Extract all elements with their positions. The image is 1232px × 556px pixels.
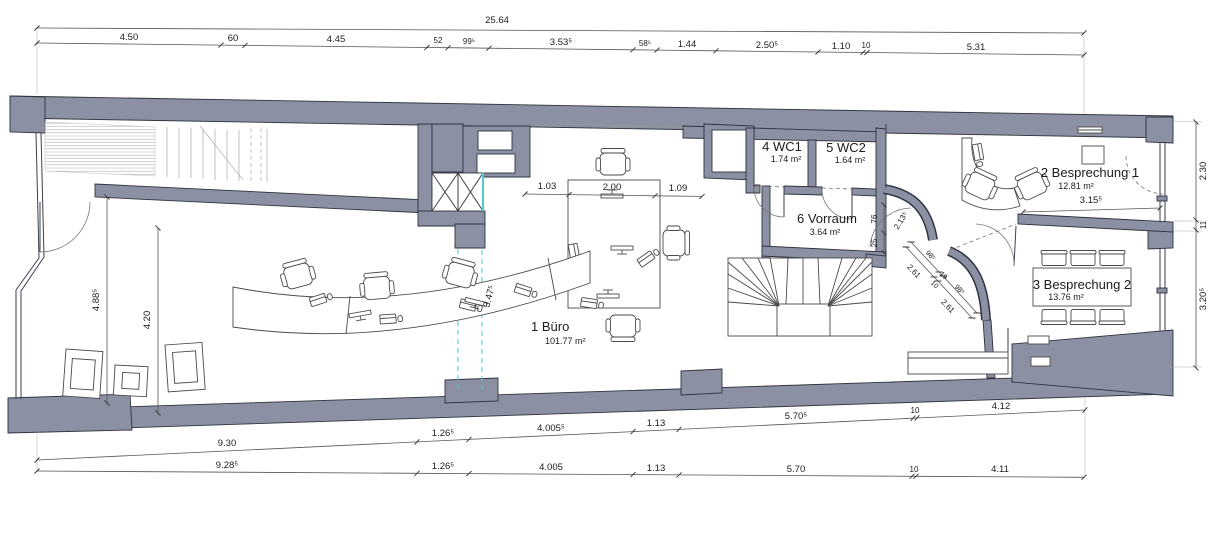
dim-botA-1: 1.26⁵ — [432, 428, 454, 439]
conference-chair — [1070, 310, 1096, 325]
dim-top-3: 52 — [434, 36, 443, 45]
dim-diag-5: 2.61 — [939, 298, 957, 316]
top-total-dim-line — [37, 28, 1084, 33]
dim-top-7: 1.44 — [678, 39, 697, 50]
dim-top-10: 10 — [862, 41, 871, 50]
dim-botA-3: 1.13 — [647, 418, 666, 429]
office-chair — [663, 226, 690, 260]
room-area-wc2: 1.64 m² — [835, 155, 866, 165]
dim-stair-0: 76 — [870, 214, 879, 223]
dim-botA-4: 5.70⁵ — [785, 411, 807, 422]
dim-b1-width: 3.15⁵ — [1080, 195, 1102, 206]
office-chair — [596, 149, 630, 176]
buero-table-group — [568, 149, 690, 342]
conference-chair — [1070, 251, 1096, 266]
room-label-buero: 1 Büro — [531, 319, 569, 334]
dim-stair-2: 2.13⁵ — [892, 210, 910, 231]
office-chair — [441, 256, 481, 290]
dim-top-4: 99⁵ — [463, 37, 475, 46]
entry-ramp-stair — [45, 122, 267, 182]
office-chair — [359, 271, 395, 300]
dim-table-0: 1.03 — [538, 181, 557, 192]
dim-top-9: 1.10 — [832, 41, 851, 52]
elevator-shaft — [432, 173, 483, 211]
dim-botA-5: 10 — [911, 406, 920, 415]
dim-top-11: 5.31 — [967, 42, 986, 53]
conference-chair — [1041, 310, 1067, 325]
dim-botB-1: 1.26⁵ — [432, 461, 454, 472]
dim-diag-4: 98⁵ — [953, 284, 966, 297]
small-table — [1082, 146, 1104, 164]
wc2-door — [822, 188, 852, 189]
dim-right-0: 2.30 — [1198, 162, 1209, 181]
room-area-besprechung1: 12.81 m² — [1058, 181, 1094, 191]
room-area-buero: 101.77 m² — [545, 336, 586, 346]
room-area-wc1: 1.74 m² — [771, 154, 802, 164]
armchair — [165, 342, 205, 391]
dim-botB-6: 4.11 — [991, 464, 1009, 475]
dim-top-0: 4.50 — [120, 32, 139, 43]
conference-chair — [1041, 251, 1067, 266]
armchair — [63, 349, 103, 398]
dim-top-1: 60 — [228, 33, 239, 44]
floor-plan-canvas: 25.64 4.50 60 4.45 52 99⁵ 3.53⁵ 58⁵ 1.44… — [0, 0, 1232, 556]
dim-botB-3: 1.13 — [647, 463, 666, 474]
dim-right-1: 11 — [1199, 220, 1208, 229]
dim-stair-1: 25 — [870, 238, 879, 247]
office-chair — [278, 257, 318, 291]
dim-botB-4: 5.70 — [787, 464, 806, 475]
dim-table-1: 2.00 — [603, 182, 622, 193]
side-table — [113, 365, 148, 397]
room-area-besprechung2: 13.76 m² — [1048, 292, 1084, 302]
dim-botB-5: 10 — [910, 465, 919, 474]
room-label-vorraum: 6 Vorraum — [797, 211, 857, 226]
dim-botB-2: 4.005 — [539, 462, 563, 473]
dim-top-2: 4.45 — [327, 34, 346, 45]
room-area-vorraum: 3.64 m² — [810, 227, 841, 237]
dim-diag-1: 98⁵ — [924, 250, 937, 263]
besprechung1-width-dim — [1023, 208, 1160, 212]
dim-botA-0: 9.30 — [218, 438, 237, 449]
dim-top-total: 25.64 — [485, 15, 509, 26]
dim-top-5: 3.53⁵ — [550, 37, 572, 48]
dim-right-2: 3.20⁵ — [1198, 288, 1209, 310]
lounge-group — [63, 342, 205, 398]
room-label-wc2: 5 WC2 — [826, 140, 866, 155]
conference-chair — [1099, 251, 1125, 266]
dim-top-6: 58⁵ — [639, 39, 651, 48]
conference-chair — [1099, 310, 1125, 325]
dim-botB-0: 9.28⁵ — [216, 460, 238, 471]
wall-shelf — [1031, 357, 1050, 366]
dim-botA-6: 4.12 — [992, 401, 1011, 412]
dim-top-8: 2.50⁵ — [756, 40, 778, 51]
dim-left-0: 4.88⁵ — [91, 289, 102, 311]
dim-botA-2: 4.005⁵ — [537, 423, 565, 434]
office-chair — [606, 315, 640, 342]
room-label-besprechung2: 3 Besprechung 2 — [1033, 277, 1131, 292]
room-label-wc1: 4 WC1 — [762, 139, 802, 154]
winder-staircase — [728, 258, 872, 336]
room-label-besprechung1: 2 Besprechung 1 — [1041, 165, 1139, 180]
dim-left-1: 4.20 — [142, 311, 153, 330]
wall-shelf — [1028, 336, 1049, 344]
entry-door-swing — [40, 202, 90, 252]
dim-diag-0: 2.61 — [905, 263, 923, 281]
sideboard — [908, 352, 1008, 374]
dim-table-2: 1.09 — [669, 183, 688, 194]
